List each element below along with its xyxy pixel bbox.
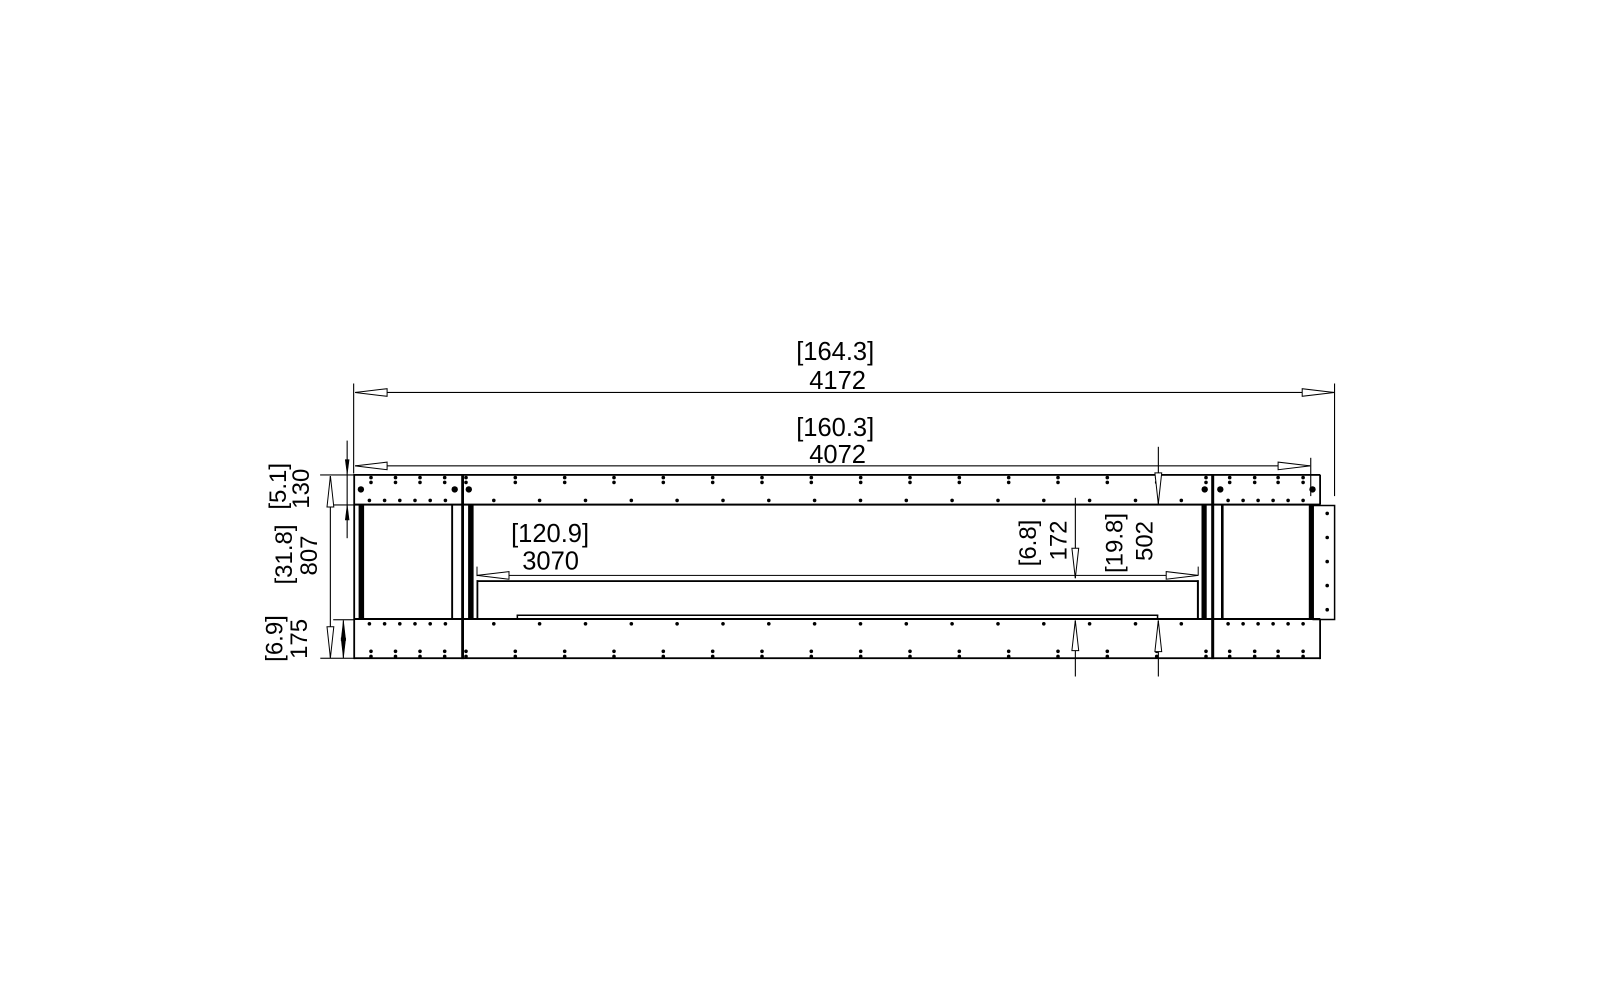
svg-text:3070: 3070 [522,548,579,576]
svg-text:[120.9]: [120.9] [511,520,589,548]
svg-text:4172: 4172 [809,367,866,395]
svg-text:[19.8]: [19.8] [1101,513,1128,573]
svg-text:[6.8]: [6.8] [1015,520,1042,567]
svg-text:807: 807 [296,535,323,575]
svg-text:502: 502 [1132,521,1159,561]
svg-text:[6.9]: [6.9] [261,615,288,662]
svg-text:[31.8]: [31.8] [271,524,298,584]
svg-text:175: 175 [286,619,313,659]
svg-text:172: 172 [1046,520,1073,560]
svg-text:[160.3]: [160.3] [796,414,874,442]
svg-text:4072: 4072 [809,441,866,469]
svg-text:130: 130 [288,469,315,509]
svg-text:[164.3]: [164.3] [796,338,874,366]
